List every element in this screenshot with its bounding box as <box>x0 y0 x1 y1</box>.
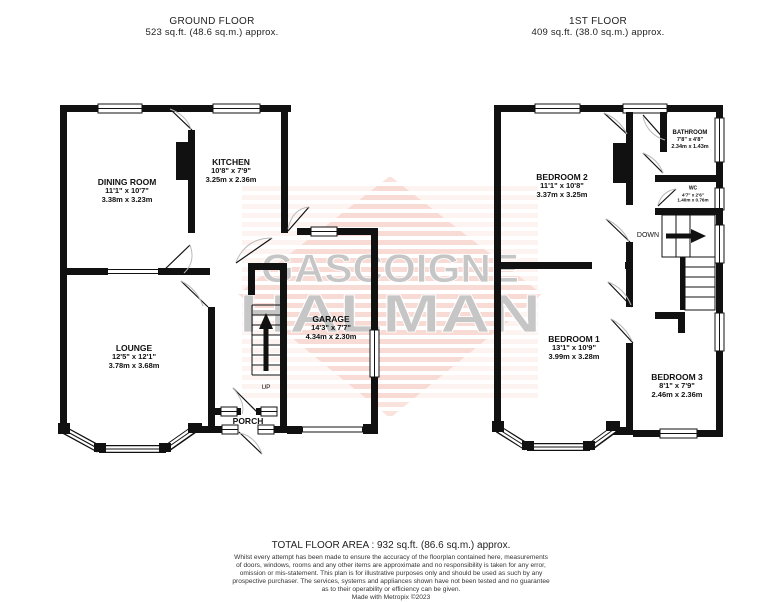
metropix-credit: Made with Metropix ©2023 <box>0 594 782 602</box>
ff-right-windows <box>715 118 724 351</box>
total-floor-area: TOTAL FLOOR AREA : 932 sq.ft. (86.6 sq.m… <box>0 540 782 551</box>
label-porch: PORCH <box>233 416 264 426</box>
label-down: DOWN <box>637 232 659 240</box>
label-bedroom-3: BEDROOM 3 8'1" x 7'9" 2.46m x 2.36m <box>651 372 702 400</box>
first-floor-title: 1ST FLOOR <box>448 16 748 27</box>
disclaimer-line-2: of doors, windows, rooms and any other i… <box>0 562 782 570</box>
footer: TOTAL FLOOR AREA : 932 sq.ft. (86.6 sq.m… <box>0 540 782 602</box>
disclaimer-line-3: omission or mis-statement. This plan is … <box>0 570 782 578</box>
label-bathroom: BATHROOM 7'8" x 4'8" 2.34m x 1.43m <box>671 130 708 150</box>
ground-floor-plan: DINING ROOM 11'1" x 10'7" 3.38m x 3.23m … <box>50 85 390 465</box>
gf-dining-kitchen-wall <box>170 109 195 233</box>
floorplan-page: { "ground_floor": { "title": "GROUND FLO… <box>0 0 782 600</box>
ff-bathroom-door <box>643 153 663 173</box>
label-bedroom-2: BEDROOM 2 11'1" x 10'8" 3.37m x 3.25m <box>536 172 587 200</box>
gf-stairs <box>252 305 280 375</box>
ff-bedroom3-wall <box>655 312 685 333</box>
ff-bedroom3-door <box>611 319 633 343</box>
ff-bay-window <box>492 421 620 450</box>
ground-floor-drawing <box>50 85 390 465</box>
ff-chimney-breast <box>613 143 626 183</box>
ff-stairs <box>662 215 715 310</box>
disclaimer-line-4: prospective purchaser. The services, sys… <box>0 578 782 586</box>
label-garage: GARAGE 14'3" x 7'7" 4.34m x 2.30m <box>306 314 357 342</box>
first-floor-header: 1ST FLOOR 409 sq.ft. (38.0 sq.m.) approx… <box>448 16 748 38</box>
gf-porch-front-door <box>239 432 262 454</box>
label-bedroom-1: BEDROOM 1 13'1" x 10'9" 3.99m x 3.28m <box>548 334 599 362</box>
ground-floor-area: 523 sq.ft. (48.6 sq.m.) approx. <box>62 27 362 38</box>
gf-chimney-breast <box>176 142 188 180</box>
label-up: UP <box>261 384 270 392</box>
label-wc: WC 4'7" x 2'6" 1.40m x 0.76m <box>677 187 708 204</box>
ff-bedroom-divider <box>494 262 633 269</box>
disclaimer-line-1: Whilst every attempt has been made to en… <box>0 554 782 562</box>
label-kitchen: KITCHEN 10'8" x 7'9" 3.25m x 2.36m <box>206 157 257 185</box>
ff-bottom-walls <box>610 427 723 438</box>
label-dining-room: DINING ROOM 11'1" x 10'7" 3.38m x 3.23m <box>98 177 157 205</box>
ff-central-wall <box>613 112 633 428</box>
gf-bay-window <box>58 423 212 452</box>
ground-floor-title: GROUND FLOOR <box>62 16 362 27</box>
gf-side-door <box>288 207 309 231</box>
ff-bedroom2-door <box>606 219 630 242</box>
ground-floor-header: GROUND FLOOR 523 sq.ft. (48.6 sq.m.) app… <box>62 16 362 38</box>
first-floor-plan: BEDROOM 2 11'1" x 10'8" 3.37m x 3.25m BA… <box>480 85 740 465</box>
disclaimer-line-5: as to their operability or efficiency ca… <box>0 586 782 594</box>
first-floor-area: 409 sq.ft. (38.0 sq.m.) approx. <box>448 27 748 38</box>
label-lounge: LOUNGE 12'5" x 12'1" 3.78m x 3.68m <box>109 343 160 371</box>
